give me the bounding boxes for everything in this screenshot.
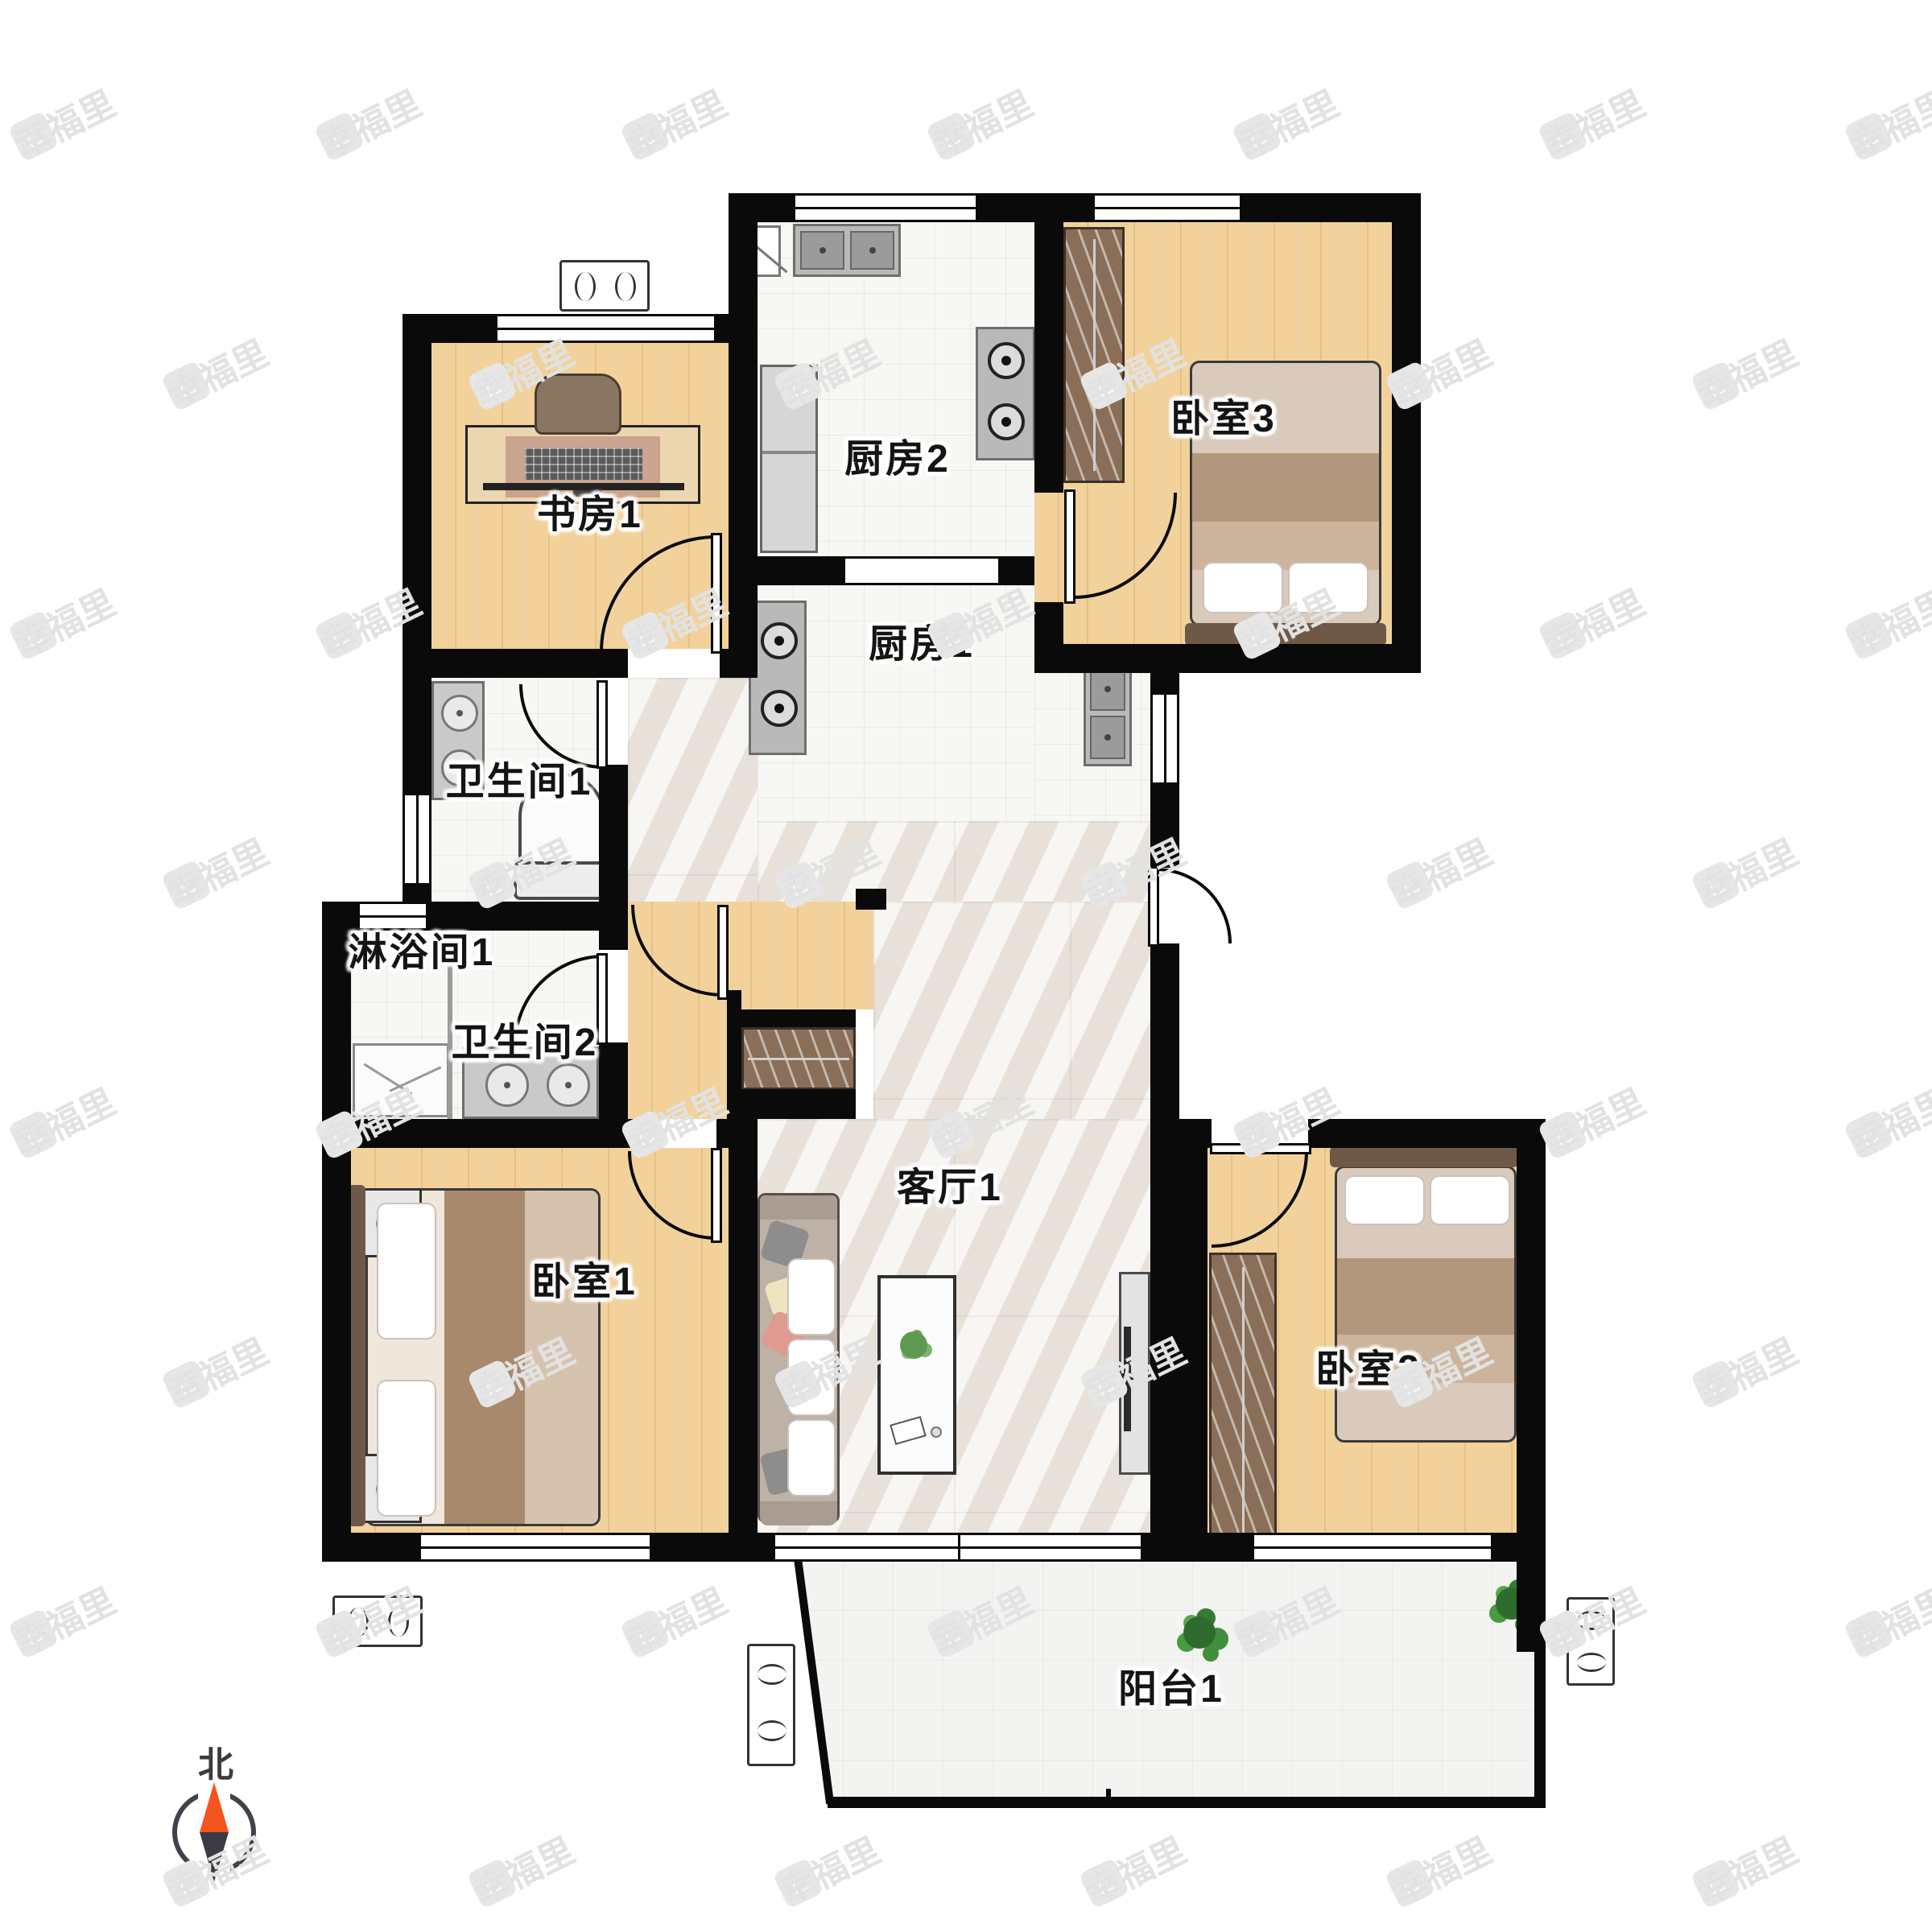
- wardrobe-bedroom3: [1063, 227, 1125, 483]
- plant-icon: [1183, 1616, 1216, 1649]
- ac-outdoor-unit-icon: [1567, 1597, 1615, 1686]
- basin-icon: [485, 1063, 529, 1107]
- watermark-text: 幸福里: [1228, 75, 1347, 167]
- window-bedroom3: [1092, 193, 1242, 222]
- door-bathroom1: [597, 680, 608, 769]
- sofa-armrest: [760, 1501, 837, 1525]
- house-icon: ⌂: [1537, 110, 1588, 162]
- wall: [727, 1089, 856, 1119]
- pillow: [1203, 562, 1283, 613]
- ac-fin: [575, 272, 596, 301]
- room-label-living1: 客厅1: [897, 1155, 1003, 1212]
- house-icon: ⌂: [160, 1358, 212, 1410]
- watermark-text: 幸福里: [1687, 324, 1806, 417]
- ac-fin: [758, 1664, 786, 1685]
- wall: [856, 889, 886, 910]
- wall: [1150, 673, 1179, 692]
- ac-outdoor-unit-icon: [559, 260, 650, 312]
- wall: [652, 1533, 773, 1562]
- storage-closet: [741, 1027, 856, 1090]
- house-icon: ⌂: [1843, 1108, 1894, 1160]
- pillow: [1344, 1175, 1425, 1225]
- blanket: [444, 1191, 525, 1524]
- flowers-icon: [900, 1331, 927, 1359]
- house-icon: ⌂: [160, 360, 212, 411]
- watermark-text: 幸福里: [1840, 75, 1932, 167]
- door-study: [711, 533, 722, 654]
- wall: [1517, 1119, 1546, 1562]
- watermark-text: 幸福里: [617, 75, 735, 167]
- house-icon: ⌂: [772, 1857, 824, 1909]
- sink-kitchen1: [1084, 660, 1132, 766]
- watermark-text: 幸福里: [1381, 824, 1500, 916]
- burner-icon: [988, 403, 1025, 440]
- house-icon: ⌂: [1231, 110, 1282, 162]
- house-icon: ⌂: [1384, 1857, 1435, 1909]
- watermark-text: 幸福里: [1840, 1572, 1932, 1665]
- ac-fin: [348, 1608, 369, 1637]
- window-bedroom2: [1252, 1533, 1493, 1562]
- watermark-text: 幸福里: [770, 1822, 888, 1914]
- door-bedroom3: [1064, 489, 1075, 604]
- house-icon: ⌂: [1843, 609, 1894, 661]
- wall: [1150, 785, 1179, 868]
- door-bedroom2: [1210, 1143, 1311, 1154]
- door-hallway: [717, 905, 729, 1000]
- room-label-kitchen2: 厨房2: [844, 427, 951, 483]
- room-label-shower1: 淋浴间1: [349, 920, 496, 976]
- watermark-text: 幸福里: [158, 1323, 276, 1415]
- house-icon: ⌂: [619, 110, 671, 162]
- floor-corridor: [628, 678, 758, 902]
- wall: [729, 556, 845, 585]
- house-icon: ⌂: [1843, 110, 1894, 162]
- cup: [931, 1426, 942, 1438]
- wall: [1392, 193, 1421, 673]
- compass-needle-north: [200, 1782, 229, 1832]
- wall: [1034, 644, 1421, 673]
- watermark-text: 幸福里: [1534, 1073, 1653, 1166]
- blanket: [1192, 453, 1379, 522]
- ac-outdoor-unit-icon: [747, 1644, 795, 1766]
- window-kitchen2: [793, 193, 978, 222]
- compass-icon: 北: [143, 1731, 288, 1892]
- door-arc-entrance: [1156, 868, 1232, 943]
- room-label-bathroom2: 卫生间2: [452, 1010, 599, 1067]
- wall: [998, 556, 1034, 585]
- balcony-wall: [1534, 1652, 1546, 1805]
- blanket: [1337, 1258, 1514, 1335]
- window-mullion: [958, 1535, 960, 1559]
- wall: [322, 1533, 419, 1562]
- ac-outdoor-unit-icon: [332, 1596, 423, 1647]
- window-living-balcony: [773, 1533, 1143, 1562]
- watermark-text: 幸福里: [1687, 1323, 1806, 1415]
- floor-bedroom3-door: [1034, 493, 1063, 602]
- fridge-divider: [762, 451, 815, 454]
- house-icon: ⌂: [160, 859, 212, 910]
- room-label-bedroom1: 卧室1: [531, 1249, 638, 1306]
- house-icon: ⌂: [7, 1108, 59, 1160]
- book: [890, 1416, 927, 1445]
- watermark-text: 幸福里: [1534, 574, 1653, 667]
- house-icon: ⌂: [619, 1608, 671, 1659]
- pillow: [377, 1380, 436, 1517]
- watermark-text: 幸福里: [1381, 1822, 1500, 1914]
- wall: [1034, 222, 1063, 493]
- watermark-text: 幸福里: [1687, 824, 1806, 916]
- wall: [758, 193, 793, 222]
- house-icon: ⌂: [7, 110, 59, 162]
- balcony-wall: [1106, 1789, 1111, 1808]
- wall: [322, 1119, 636, 1148]
- basin-icon: [441, 695, 478, 732]
- headboard: [1185, 623, 1386, 646]
- wall: [1517, 1562, 1546, 1652]
- room-label-bathroom1: 卫生间1: [446, 749, 593, 806]
- stove-kitchen2: [976, 327, 1035, 460]
- pillow: [1288, 562, 1368, 613]
- floor-hallway-b: [727, 902, 873, 1009]
- watermark-text: 幸福里: [5, 1073, 123, 1166]
- watermark-text: 幸福里: [1687, 1822, 1806, 1914]
- house-icon: ⌂: [313, 110, 365, 162]
- wall: [322, 902, 351, 1562]
- wall: [402, 678, 431, 793]
- shower-line: [390, 1066, 442, 1092]
- kitchen-passage-opening: [845, 556, 998, 585]
- room-label-bedroom2: 卧室2: [1315, 1337, 1422, 1393]
- window-bathroom1: [402, 793, 431, 885]
- sink-basin: [1090, 667, 1125, 711]
- watermark-text: 幸福里: [1534, 75, 1653, 167]
- shower-stall: [353, 1043, 449, 1117]
- shower-line: [364, 1063, 413, 1096]
- sofa-cushion: [787, 1339, 836, 1416]
- house-icon: ⌂: [1537, 609, 1588, 661]
- sofa-cushion: [787, 1419, 836, 1496]
- room-label-study1: 书房1: [537, 482, 643, 539]
- ac-fin: [615, 272, 636, 301]
- coffee-table: [877, 1275, 956, 1475]
- wall: [978, 193, 1092, 222]
- compass-north-label: 北: [198, 1736, 233, 1787]
- room-label-kitchen1: 厨房1: [869, 612, 975, 668]
- tv-base: [1121, 1373, 1133, 1380]
- room-label-balcony1: 阳台1: [1118, 1657, 1224, 1713]
- wall: [1150, 1119, 1207, 1562]
- house-icon: ⌂: [925, 110, 976, 162]
- pillow: [377, 1203, 436, 1340]
- wardrobe-bedroom2: [1209, 1253, 1277, 1558]
- burner-icon: [761, 622, 798, 659]
- basin-icon: [547, 1063, 590, 1107]
- wall: [402, 649, 628, 678]
- wall: [720, 649, 758, 678]
- sofa: [758, 1193, 840, 1523]
- watermark-text: 幸福里: [923, 75, 1041, 167]
- watermark-text: 幸福里: [5, 1572, 123, 1665]
- window-kitchen1: [1150, 692, 1179, 785]
- sofa-armrest: [760, 1195, 837, 1220]
- ac-fin: [388, 1608, 409, 1637]
- house-icon: ⌂: [1690, 1857, 1741, 1909]
- floor-plan: 厨房2 卧室3 书房1 厨房1 卫生间1 淋浴间1 卫生间2 卧室1 客厅1 卧…: [0, 0, 1932, 1932]
- pillow: [1430, 1175, 1510, 1225]
- floor-living-upper: [873, 902, 1150, 1119]
- wall: [599, 1042, 628, 1119]
- sink-basin: [800, 231, 844, 270]
- house-icon: ⌂: [1078, 1857, 1129, 1909]
- house-icon: ⌂: [1690, 360, 1741, 411]
- floor-living-strip: [758, 821, 1150, 902]
- door-bedroom1: [711, 1148, 722, 1243]
- watermark-text: 幸福里: [158, 824, 276, 916]
- watermark-text: 幸福里: [5, 75, 123, 167]
- keyboard-icon: [525, 448, 642, 480]
- burner-icon: [761, 690, 798, 727]
- headboard: [1330, 1146, 1518, 1167]
- wall: [1150, 1119, 1212, 1148]
- fridge: [760, 365, 818, 553]
- door-entrance: [1148, 866, 1159, 947]
- watermark-text: 幸福里: [1840, 574, 1932, 667]
- house-icon: ⌂: [1690, 1358, 1741, 1410]
- watermark-text: 幸福里: [464, 1822, 582, 1914]
- balcony-wall: [828, 1797, 1546, 1808]
- sink-kitchen2: [793, 224, 901, 277]
- house-icon: ⌂: [7, 1608, 59, 1659]
- watermark-text: 幸福里: [5, 574, 123, 667]
- watermark-text: 幸福里: [311, 75, 429, 167]
- room-label-bedroom3: 卧室3: [1170, 386, 1277, 443]
- sink-basin: [1090, 716, 1125, 759]
- ac-fin: [1577, 1653, 1606, 1672]
- sink-basin: [850, 231, 894, 270]
- watermark-text: 幸福里: [1840, 1073, 1932, 1166]
- wall: [402, 314, 431, 678]
- house-icon: ⌂: [1843, 1608, 1894, 1659]
- watermark-text: 幸福里: [617, 1572, 735, 1665]
- house-icon: ⌂: [1384, 859, 1435, 910]
- office-chair: [535, 374, 621, 435]
- ac-fin: [1577, 1611, 1606, 1630]
- wall: [1308, 1119, 1546, 1148]
- watermark-text: 幸福里: [158, 324, 276, 417]
- house-icon: ⌂: [1690, 859, 1741, 910]
- wall: [1150, 943, 1179, 1119]
- watermark-text: 幸福里: [1075, 1822, 1194, 1914]
- wall: [741, 1009, 856, 1027]
- toilet-tank: [514, 861, 610, 900]
- house-icon: ⌂: [466, 1857, 518, 1909]
- burner-icon: [988, 342, 1025, 379]
- sofa-cushion: [787, 1258, 836, 1335]
- window-bedroom1: [419, 1533, 652, 1562]
- ac-fin: [758, 1720, 786, 1741]
- blanket: [525, 1191, 601, 1524]
- window-study: [495, 314, 716, 343]
- compass-needle-south: [200, 1832, 229, 1882]
- house-icon: ⌂: [313, 609, 365, 661]
- house-icon: ⌂: [7, 609, 59, 661]
- wall: [729, 1119, 758, 1562]
